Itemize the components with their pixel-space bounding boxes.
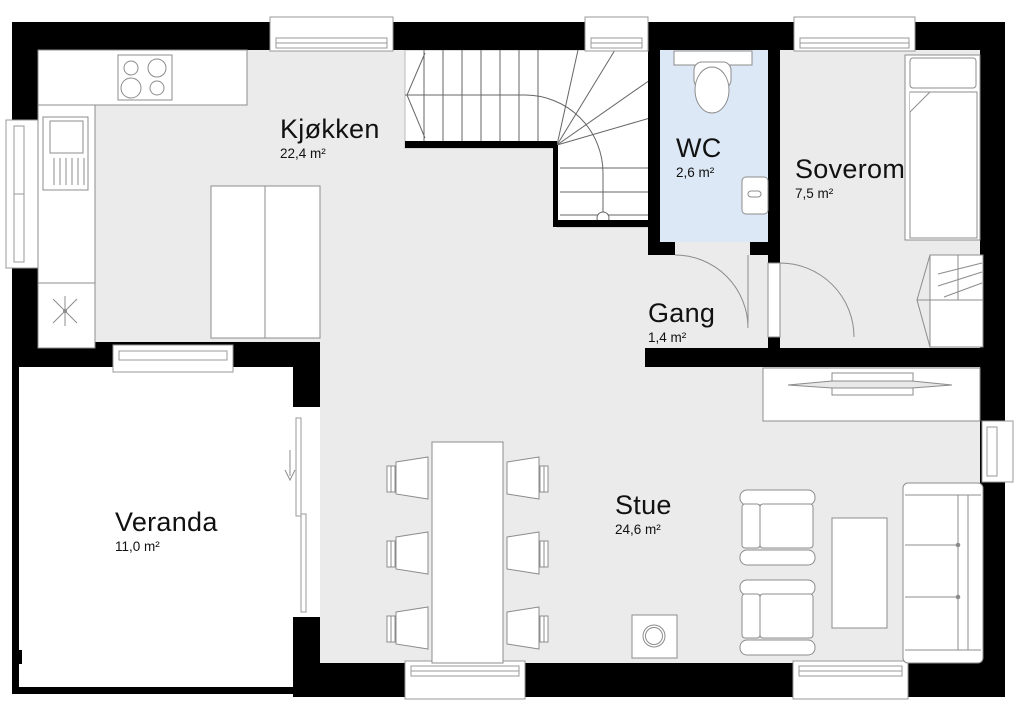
- room-area-kjokken: 22,4 m²: [280, 147, 380, 161]
- window-stue-south-left: [405, 661, 525, 699]
- room-area-wc: 2,6 m²: [676, 166, 722, 180]
- wall-stair-side: [553, 145, 558, 225]
- bed-mattress: [910, 92, 977, 238]
- room-name-wc: WC: [676, 134, 722, 162]
- wall-veranda-stue-upper: [293, 342, 320, 407]
- wc-faucet: [748, 191, 761, 197]
- sliding-door-panel-2: [301, 514, 306, 612]
- wall-gang-stue: [645, 348, 1005, 367]
- room-name-stue: Stue: [615, 491, 672, 519]
- room-area-soverom: 7,5 m²: [795, 187, 905, 201]
- dining-table: [432, 442, 503, 663]
- kitchen-sink: [50, 121, 83, 153]
- window-stue-south-right: [793, 661, 908, 699]
- room-area-gang: 1,4 m²: [648, 331, 715, 345]
- armchair-1: [740, 490, 815, 565]
- window-kitchen-veranda: [113, 345, 233, 372]
- room-label-soverom: Soverom 7,5 m²: [795, 155, 905, 202]
- room-area-stue: 24,6 m²: [615, 523, 672, 537]
- room-name-kjokken: Kjøkken: [280, 115, 380, 143]
- sliding-door-panel: [296, 418, 301, 516]
- bed-pillow: [910, 58, 976, 88]
- wall-wc-east: [768, 50, 780, 263]
- sofa: [903, 483, 983, 663]
- toilet-bowl: [695, 67, 729, 113]
- room-label-stue: Stue 24,6 m²: [615, 491, 672, 538]
- floor-plan-svg: [0, 0, 1018, 720]
- door-leaf-bedroom: [768, 263, 780, 337]
- wall-veranda-stue-lower: [293, 617, 320, 667]
- wall-wc-south-left: [648, 242, 675, 255]
- wall-veranda-south: [12, 687, 300, 694]
- room-label-wc: WC 2,6 m²: [676, 134, 722, 181]
- wall-veranda-west: [12, 348, 19, 694]
- wall-wc-south-right: [750, 242, 780, 255]
- room-area-veranda: 11,0 m²: [115, 540, 218, 554]
- window-bedroom-north: [794, 17, 915, 51]
- wardrobe: [930, 255, 983, 347]
- room-name-veranda: Veranda: [115, 508, 218, 536]
- room-label-gang: Gang 1,4 m²: [648, 299, 715, 346]
- window-kitchen-north: [270, 17, 393, 51]
- room-name-gang: Gang: [648, 299, 715, 327]
- wall-veranda-nub: [12, 650, 22, 664]
- wall-stair-inner: [405, 141, 557, 148]
- wall-stair-bottom: [553, 220, 650, 227]
- floor-plan: Kjøkken 22,4 m² WC 2,6 m² Soverom 7,5 m²…: [0, 0, 1018, 720]
- room-label-kjokken: Kjøkken 22,4 m²: [280, 115, 380, 162]
- coffee-table: [832, 518, 887, 628]
- window-stairs-north: [585, 17, 648, 51]
- room-label-veranda: Veranda 11,0 m²: [115, 508, 218, 555]
- room-name-soverom: Soverom: [795, 155, 905, 183]
- armchair-2: [740, 580, 815, 655]
